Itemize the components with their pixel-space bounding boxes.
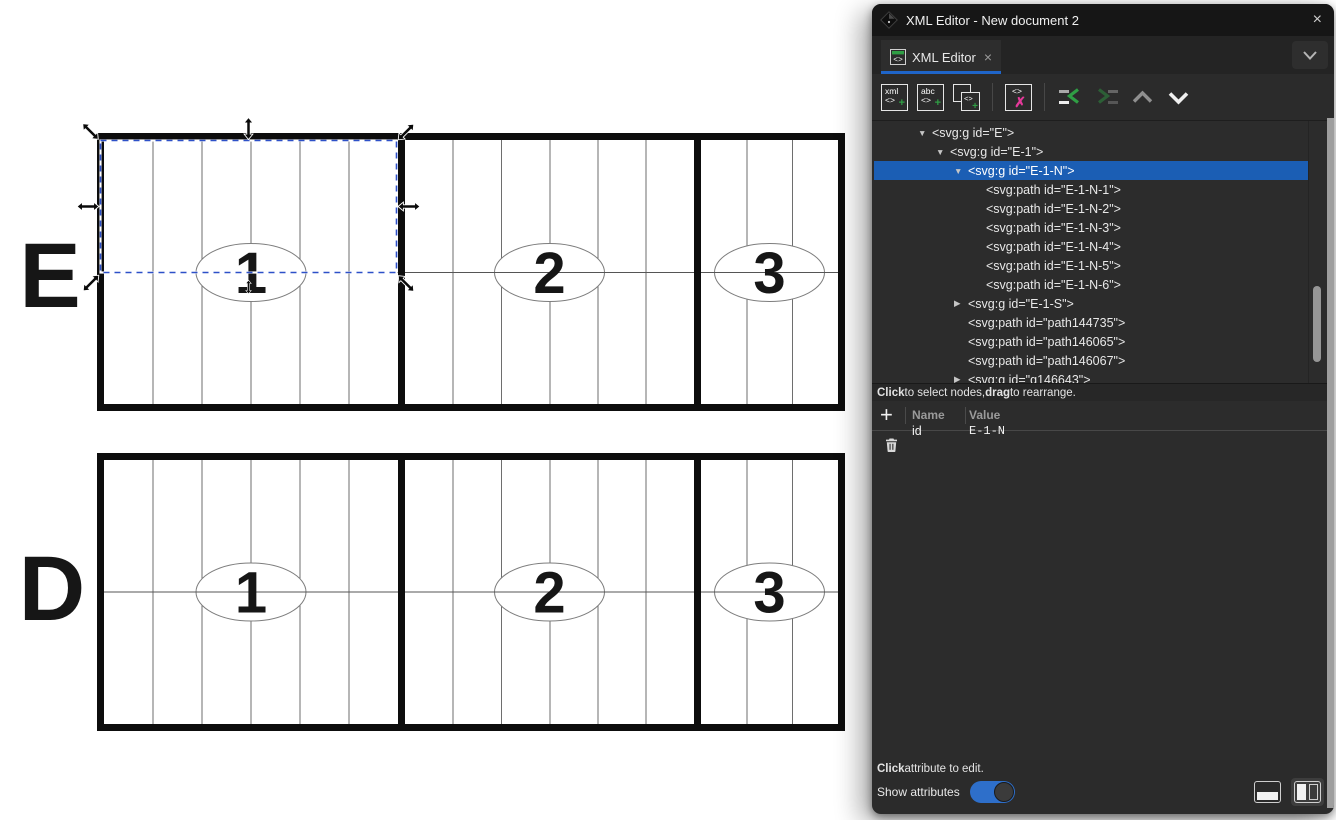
close-icon[interactable]: × — [1313, 12, 1322, 28]
attributes-empty-area — [872, 431, 1334, 760]
figure-row-D[interactable]: D 1 2 3 — [19, 453, 842, 731]
cell-number: 2 — [533, 561, 565, 626]
duplicate-node-button[interactable]: <> + — [953, 84, 980, 111]
move-node-up-button[interactable] — [1129, 84, 1156, 111]
panel-footer: Show attributes — [872, 778, 1334, 814]
new-element-node-button[interactable]: xml <> + — [881, 84, 908, 111]
attribute-value[interactable]: E-1-N — [969, 424, 1005, 438]
tree-node[interactable]: <svg:path id="E-1-N-4"> — [874, 237, 1309, 256]
tree-hint: Click to select nodes, drag to rearrange… — [872, 384, 1334, 401]
tab-strip: <> XML Editor × — [872, 36, 1334, 74]
delete-node-button[interactable]: <> ✗ — [1005, 84, 1032, 111]
collapse-arrow-icon[interactable]: ▼ — [954, 166, 968, 176]
xml-editor-panel: XML Editor - New document 2 × <> XML Edi… — [872, 4, 1334, 814]
inkscape-logo-icon — [880, 11, 898, 29]
collapse-arrow-icon[interactable]: ▼ — [936, 147, 950, 157]
tree-scrollbar-thumb[interactable] — [1313, 286, 1321, 362]
expand-arrow-icon[interactable]: ▶ — [954, 298, 968, 309]
plus-icon: + — [972, 101, 978, 112]
chevron-up-icon — [1129, 84, 1156, 111]
window-scrollbar-edge[interactable] — [1327, 118, 1334, 808]
window-title: XML Editor - New document 2 — [906, 13, 1079, 28]
tree-node-label: <svg:g id="E-1-N"> — [968, 164, 1075, 178]
cell-number: 3 — [753, 241, 785, 306]
unindent-node-button[interactable] — [1057, 84, 1084, 111]
xml-tree[interactable]: ▼ <svg:g id="E"> ▼ <svg:g id="E-1"> ▼ <s… — [872, 120, 1334, 384]
panel-menu-button[interactable] — [1292, 41, 1328, 69]
attributes-header: + Name Value — [872, 401, 1334, 431]
scale-handle-n[interactable] — [244, 118, 253, 140]
cell-number: 1 — [235, 561, 267, 626]
tree-node[interactable]: ▼ <svg:g id="E-1"> — [874, 142, 1309, 161]
show-attributes-toggle[interactable] — [970, 781, 1015, 803]
svg-text:<>: <> — [893, 56, 903, 65]
plus-icon: + — [899, 97, 905, 109]
show-attributes-label: Show attributes — [877, 785, 960, 799]
tree-node[interactable]: <svg:path id="path146065"> — [874, 332, 1309, 351]
tree-node-label: <svg:path id="path146065"> — [968, 335, 1125, 349]
tree-node-label: <svg:path id="E-1-N-1"> — [986, 183, 1121, 197]
xml-editor-tab-icon: <> — [890, 49, 906, 65]
tab-label: XML Editor — [912, 50, 976, 65]
new-text-node-button[interactable]: abc <> + — [917, 84, 944, 111]
expand-arrow-icon[interactable]: ▶ — [954, 374, 968, 384]
row-label-D: D — [19, 538, 85, 640]
panel-titlebar[interactable]: XML Editor - New document 2 × — [872, 4, 1334, 36]
attribute-hint: Click attribute to edit. — [872, 760, 1334, 778]
column-header-name: Name — [912, 408, 945, 422]
plus-icon: + — [935, 97, 941, 109]
layout-vertical-button[interactable] — [1291, 778, 1324, 806]
indent-node-button[interactable] — [1093, 84, 1120, 111]
layout-horizontal-button[interactable] — [1254, 781, 1281, 803]
chevron-down-icon — [1165, 84, 1192, 111]
tree-node[interactable]: <svg:path id="E-1-N-1"> — [874, 180, 1309, 199]
tree-node-label: <svg:g id="g146643"> — [968, 373, 1091, 385]
inkscape-window: E 1 2 3 — [0, 0, 1336, 820]
tree-node-label: <svg:path id="E-1-N-4"> — [986, 240, 1121, 254]
scale-handle-e[interactable] — [398, 202, 420, 211]
tree-node[interactable]: ▼ <svg:g id="E"> — [874, 123, 1309, 142]
tree-node-label: <svg:g id="E-1-S"> — [968, 297, 1074, 311]
tab-xml-editor[interactable]: <> XML Editor × — [881, 40, 1001, 74]
delete-x-icon: ✗ — [1014, 95, 1026, 110]
chevron-down-icon — [1303, 51, 1317, 60]
drawing-canvas[interactable]: E 1 2 3 — [0, 0, 872, 820]
tree-node[interactable]: <svg:path id="path146067"> — [874, 351, 1309, 370]
layout-vertical-icon — [1294, 781, 1321, 803]
toggle-knob — [994, 782, 1014, 802]
tree-node-label: <svg:g id="E"> — [932, 126, 1014, 140]
tree-node[interactable]: <svg:path id="E-1-N-5"> — [874, 256, 1309, 275]
trash-icon[interactable] — [885, 438, 898, 457]
cell-number: 3 — [753, 561, 785, 626]
tree-node-label: <svg:path id="path144735"> — [968, 316, 1125, 330]
figure-row-E[interactable]: E 1 2 3 — [19, 118, 841, 412]
tree-node-label: <svg:path id="path146067"> — [968, 354, 1125, 368]
xml-toolbar: xml <> + abc <> + <> + <> ✗ — [872, 74, 1334, 120]
tree-node-label: <svg:path id="E-1-N-6"> — [986, 278, 1121, 292]
tree-node[interactable]: <svg:path id="E-1-N-3"> — [874, 218, 1309, 237]
cell-number: 2 — [533, 241, 565, 306]
column-header-value: Value — [969, 408, 1000, 422]
collapse-arrow-icon[interactable]: ▼ — [918, 128, 932, 138]
toolbar-separator — [1044, 83, 1045, 111]
tree-node[interactable]: ▶ <svg:g id="g146643"> — [874, 370, 1309, 384]
attribute-name[interactable]: id — [912, 424, 922, 438]
tree-node[interactable]: <svg:path id="E-1-N-2"> — [874, 199, 1309, 218]
scale-handle-w[interactable] — [77, 202, 99, 211]
add-attribute-button[interactable]: + — [880, 402, 893, 428]
row-label-E: E — [19, 225, 80, 327]
scale-handle-nw[interactable] — [80, 121, 102, 143]
tree-node-label: <svg:path id="E-1-N-3"> — [986, 221, 1121, 235]
tree-node-label: <svg:g id="E-1"> — [950, 145, 1043, 159]
tab-close-icon[interactable]: × — [984, 49, 992, 65]
tree-node[interactable]: ▼ <svg:g id="E-1-N"> — [874, 161, 1309, 180]
tree-node[interactable]: ▶ <svg:g id="E-1-S"> — [874, 294, 1309, 313]
move-node-down-button[interactable] — [1165, 84, 1192, 111]
tree-node-label: <svg:path id="E-1-N-5"> — [986, 259, 1121, 273]
toolbar-separator — [992, 83, 993, 111]
indent-icon — [1093, 84, 1120, 111]
active-tab-underline — [881, 71, 1001, 74]
unindent-icon — [1057, 84, 1084, 111]
tree-node-label: <svg:path id="E-1-N-2"> — [986, 202, 1121, 216]
tree-node[interactable]: <svg:path id="E-1-N-6"> — [874, 275, 1309, 294]
tree-node[interactable]: <svg:path id="path144735"> — [874, 313, 1309, 332]
